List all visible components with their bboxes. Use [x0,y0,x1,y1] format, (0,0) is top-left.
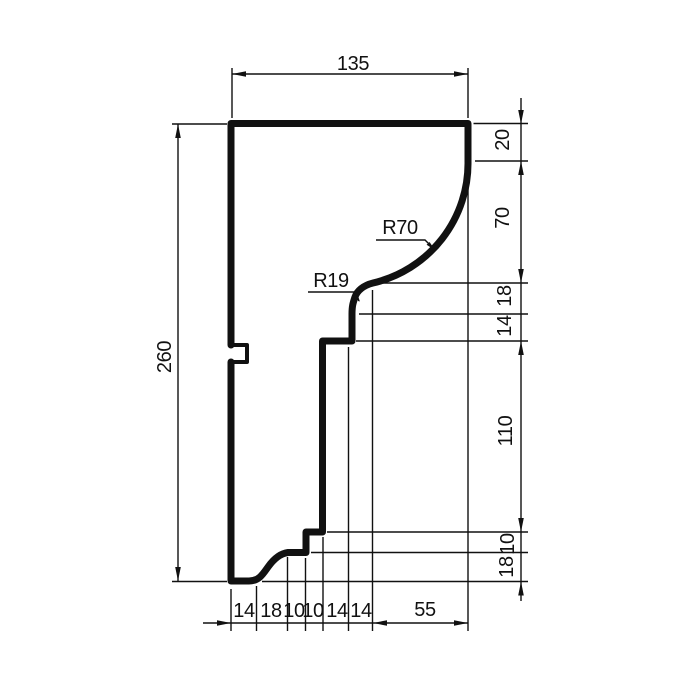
arrow-right-18bot-icon [518,582,524,596]
dim-right-110: 110 [496,416,516,447]
dim-bottom-14a: 14 [233,601,254,621]
molding-profile-outline [231,124,468,582]
drawing-geometry [0,0,686,686]
dim-bottom-18: 18 [260,601,281,621]
arrow-right-70top-icon [518,161,524,175]
arrow-right-110top-icon [518,341,524,355]
left-face-notch [231,345,247,362]
dim-bottom-10b: 10 [302,601,323,621]
arrowheads [175,71,524,626]
arrow-bottom-55right-icon [454,620,468,626]
dim-bottom-14c: 14 [350,601,371,621]
arrow-left-down-icon [175,567,181,581]
leader-r70 [376,240,434,249]
arrow-right-20-icon [518,110,524,124]
dim-right-10: 10 [498,533,518,554]
dim-left-260: 260 [155,341,175,373]
arrow-bottom-outside-icon [217,620,231,626]
dim-right-18a: 18 [495,285,515,306]
arrow-bottom-55left-icon [373,620,387,626]
dim-bottom-55: 55 [414,600,435,620]
dim-right-70: 70 [493,207,513,228]
dim-top-135: 135 [337,54,369,74]
dim-right-18b: 18 [497,556,517,577]
dim-bottom-14b: 14 [326,601,347,621]
extension-lines [172,68,528,631]
dim-right-14: 14 [495,315,515,336]
radius-callout-r19: R19 [313,271,349,291]
arrow-right-70bot-icon [518,269,524,283]
technical-drawing-canvas: 135 260 20 70 18 14 110 10 18 14 18 10 1… [0,0,686,686]
arrow-top-right-icon [454,71,468,77]
dim-right-20: 20 [493,129,513,150]
arrow-right-110bot-icon [518,518,524,532]
arrow-top-left-icon [232,71,246,77]
arrow-left-up-icon [175,124,181,138]
radius-callout-r70: R70 [382,218,418,238]
